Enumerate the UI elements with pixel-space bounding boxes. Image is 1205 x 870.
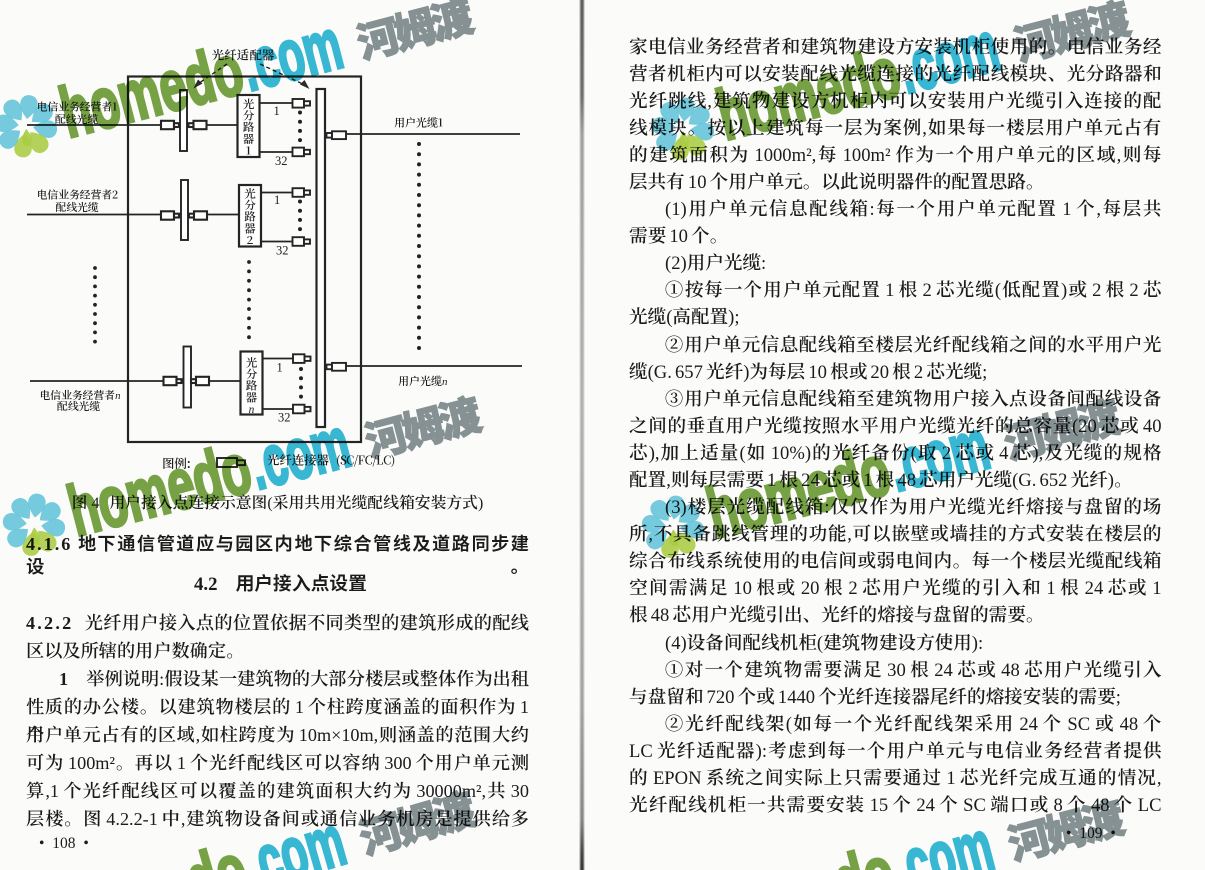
svg-text:河姆渡: 河姆渡 <box>358 381 488 470</box>
svg-text:河姆渡: 河姆渡 <box>1007 0 1137 74</box>
svg-text:河姆渡: 河姆渡 <box>997 383 1127 472</box>
svg-text:1: 1 <box>274 193 280 207</box>
svg-text:配线光缆: 配线光缆 <box>57 399 100 414</box>
svg-text:用户光缆1: 用户光缆1 <box>394 115 443 131</box>
svg-text:河姆渡: 河姆渡 <box>1001 784 1131 870</box>
svg-text:32: 32 <box>276 244 289 258</box>
svg-text:32: 32 <box>275 154 288 168</box>
svg-text:河姆渡: 河姆渡 <box>352 776 482 867</box>
svg-text:配线光缆: 配线光缆 <box>55 200 98 215</box>
svg-text:1: 1 <box>277 361 283 375</box>
